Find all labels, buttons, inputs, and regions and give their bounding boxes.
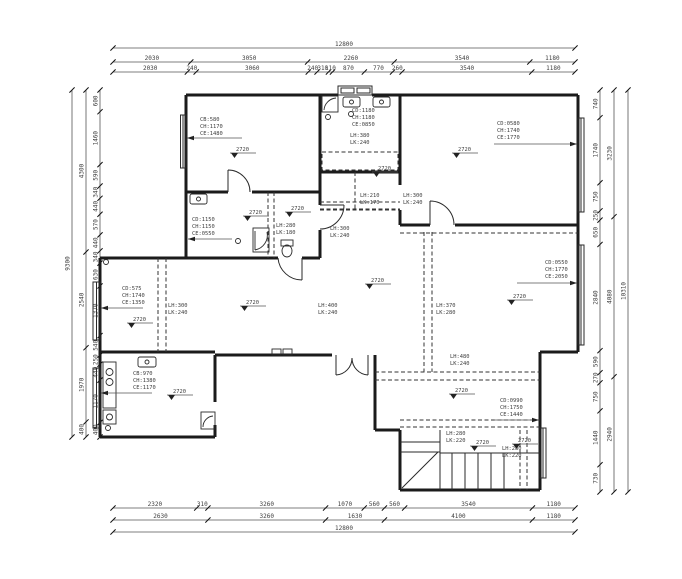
elevation-marker: 2720	[470, 440, 496, 451]
svg-text:LH:480: LH:480	[450, 354, 469, 360]
svg-text:590: 590	[93, 169, 100, 180]
french-door-arcs	[336, 355, 368, 375]
svg-text:CH:1740: CH:1740	[497, 128, 520, 134]
svg-text:2720: 2720	[455, 388, 468, 394]
sink	[343, 97, 360, 107]
svg-text:CE:1350: CE:1350	[122, 300, 145, 306]
svg-text:CH:1740: CH:1740	[122, 293, 145, 299]
svg-text:CD:0990: CD:0990	[500, 398, 523, 404]
svg-text:2720: 2720	[246, 300, 259, 306]
door-kitchen	[201, 412, 215, 429]
svg-text:2030: 2030	[143, 65, 158, 72]
svg-text:440: 440	[93, 200, 100, 211]
svg-text:LH:300: LH:300	[330, 226, 349, 232]
window-annotation: CB:580 CH:1170 CE:1480	[187, 117, 242, 140]
svg-text:CD:1150: CD:1150	[192, 217, 215, 223]
doors	[201, 96, 454, 429]
svg-text:650: 650	[593, 226, 600, 237]
svg-text:LK:170: LK:170	[360, 200, 379, 206]
svg-text:750: 750	[593, 191, 600, 202]
svg-text:340: 340	[93, 251, 100, 262]
sink	[190, 194, 207, 204]
svg-text:250: 250	[93, 354, 100, 365]
svg-text:CH:1170: CH:1170	[200, 124, 223, 130]
dim-top-minor: 2030240306024031011087077026035401180	[110, 65, 577, 75]
svg-text:2630: 2630	[153, 513, 168, 520]
beam-label: LH:380LK:240 LH:210LK:170 LH:300LK:240 L…	[168, 133, 521, 459]
svg-text:2720: 2720	[249, 210, 262, 216]
svg-text:LK:240: LK:240	[330, 233, 349, 239]
svg-text:4300: 4300	[79, 163, 86, 178]
svg-text:LH:280: LH:280	[276, 223, 295, 229]
dim-right-middle: 323040802940	[607, 87, 617, 494]
svg-text:250: 250	[593, 210, 600, 221]
svg-text:4080: 4080	[607, 289, 614, 304]
svg-text:570: 570	[93, 219, 100, 230]
dim-bottom-major: 26303260163041001180	[110, 513, 577, 523]
svg-text:2720: 2720	[458, 147, 471, 153]
elevation-marker: 2720	[285, 206, 311, 217]
svg-text:CH:1150: CH:1150	[192, 224, 215, 230]
svg-text:400: 400	[79, 424, 86, 435]
elevation-marker: 2720	[365, 278, 391, 289]
windows-glazing	[93, 86, 584, 478]
elevation-marker: 2720	[240, 300, 266, 311]
floor-plan-drawing: 12800 20303050226035401180 2030240306024…	[0, 0, 682, 579]
svg-text:LK:220: LK:220	[446, 438, 465, 444]
svg-text:LH:380: LH:380	[350, 133, 369, 139]
svg-text:3540: 3540	[461, 501, 476, 508]
svg-text:LK:220: LK:220	[502, 453, 521, 459]
exterior-walls	[100, 95, 578, 490]
svg-text:750: 750	[593, 391, 600, 402]
svg-text:260: 260	[392, 65, 403, 72]
svg-text:2720: 2720	[173, 389, 186, 395]
elevation-marker: 2720	[127, 317, 153, 328]
svg-text:600: 600	[93, 95, 100, 106]
svg-text:LH:280: LH:280	[446, 431, 465, 437]
svg-text:3540: 3540	[455, 55, 470, 62]
svg-text:CH:1380: CH:1380	[133, 378, 156, 384]
svg-text:110: 110	[325, 65, 336, 72]
window-annotation: CD:1180 CH:1180 CE:0850	[352, 108, 375, 128]
dim-bottom-minor: 23203103260107056056035401180	[110, 501, 577, 511]
svg-text:730: 730	[593, 473, 600, 484]
dim-top-major: 20303050226035401180	[110, 55, 577, 65]
svg-text:CD:575: CD:575	[122, 286, 141, 292]
svg-text:630: 630	[93, 269, 100, 280]
door-bedroom-arc	[228, 170, 250, 192]
svg-text:CD:0580: CD:0580	[497, 121, 520, 127]
elevation-marker: 2720	[167, 389, 193, 400]
svg-text:CE:0850: CE:0850	[352, 122, 375, 128]
svg-text:2030: 2030	[145, 55, 160, 62]
door-toilet	[253, 228, 269, 252]
svg-text:3260: 3260	[260, 513, 275, 520]
svg-text:12800: 12800	[335, 41, 353, 48]
svg-text:CE:1170: CE:1170	[133, 385, 156, 391]
dim-left-middle: 430025401970400	[79, 87, 89, 439]
svg-text:2720: 2720	[236, 147, 249, 153]
svg-text:770: 770	[373, 65, 384, 72]
svg-text:2260: 2260	[344, 55, 359, 62]
svg-text:3060: 3060	[245, 65, 260, 72]
svg-text:3540: 3540	[460, 65, 475, 72]
svg-text:LK:240: LK:240	[350, 140, 369, 146]
svg-text:10310: 10310	[621, 282, 628, 300]
elevation-marker: 2720	[507, 294, 533, 305]
dim-right-inner: 740174075025065028405902707501440730	[593, 87, 603, 494]
elevation-marker: 2720	[243, 210, 269, 221]
svg-text:LH:300: LH:300	[403, 193, 422, 199]
svg-text:2720: 2720	[291, 206, 304, 212]
svg-text:440: 440	[93, 237, 100, 248]
svg-text:CE:1440: CE:1440	[500, 412, 523, 418]
svg-text:1180: 1180	[546, 513, 561, 520]
door-right-room-arc	[430, 201, 454, 225]
window-annotation: CD:0580 CH:1740 CE:1770	[494, 121, 577, 146]
svg-text:2720: 2720	[476, 440, 489, 446]
svg-text:CB:580: CB:580	[200, 117, 219, 123]
svg-text:2720: 2720	[133, 317, 146, 323]
svg-text:LH:370: LH:370	[436, 303, 455, 309]
svg-text:2720: 2720	[518, 438, 531, 444]
svg-text:1440: 1440	[593, 430, 600, 445]
svg-text:CE:2050: CE:2050	[545, 274, 568, 280]
elevation-marker: 2720	[512, 438, 538, 449]
toilet	[281, 240, 293, 257]
entry-door-panel	[338, 86, 372, 95]
svg-text:CE:0550: CE:0550	[192, 231, 215, 237]
svg-text:1180: 1180	[546, 501, 561, 508]
svg-text:560: 560	[369, 501, 380, 508]
dim-right-total: 10310	[621, 87, 631, 494]
window-annotation: CB:970 CH:1380 CE:1170	[101, 371, 156, 395]
svg-text:2320: 2320	[148, 501, 163, 508]
elevation-marker: 2720	[230, 147, 256, 158]
sink	[138, 357, 156, 367]
svg-text:1970: 1970	[79, 377, 86, 392]
svg-text:LK:240: LK:240	[450, 361, 469, 367]
svg-text:1740: 1740	[593, 143, 600, 158]
sink	[373, 97, 390, 107]
svg-text:1630: 1630	[348, 513, 363, 520]
floor-plan-canvas: 12800 20303050226035401180 2030240306024…	[0, 0, 682, 579]
svg-text:12800: 12800	[335, 525, 353, 532]
svg-text:340: 340	[93, 186, 100, 197]
dim-top-total: 12800	[110, 41, 577, 51]
svg-text:560: 560	[389, 501, 400, 508]
svg-text:2720: 2720	[371, 278, 384, 284]
svg-text:740: 740	[593, 98, 600, 109]
svg-text:540: 540	[93, 340, 100, 351]
svg-text:LH:400: LH:400	[318, 303, 337, 309]
svg-text:3230: 3230	[607, 146, 614, 161]
svg-text:240: 240	[186, 65, 197, 72]
svg-text:CH:1770: CH:1770	[545, 267, 568, 273]
svg-text:3050: 3050	[242, 55, 257, 62]
svg-text:LH:300: LH:300	[168, 303, 187, 309]
window-annotation: CD:575 CH:1740 CE:1350	[101, 286, 145, 310]
svg-text:2940: 2940	[607, 427, 614, 442]
svg-text:LK:180: LK:180	[276, 230, 295, 236]
svg-text:4100: 4100	[451, 513, 466, 520]
window-annotation: CD:0550 CH:1770 CE:2050	[517, 260, 577, 285]
svg-text:LK:240: LK:240	[318, 310, 337, 316]
svg-text:3260: 3260	[260, 501, 275, 508]
shower-door	[322, 96, 338, 112]
svg-text:870: 870	[343, 65, 354, 72]
svg-text:CD:1180: CD:1180	[352, 108, 375, 114]
dim-bottom-total: 12800	[110, 525, 577, 535]
svg-text:CH:1180: CH:1180	[352, 115, 375, 121]
elevation-marker: 2720	[452, 147, 478, 158]
svg-text:1070: 1070	[338, 501, 353, 508]
svg-text:2540: 2540	[79, 292, 86, 307]
svg-text:1460: 1460	[93, 131, 100, 146]
dim-left-total: 9300	[65, 87, 75, 439]
svg-text:9300: 9300	[65, 256, 72, 271]
svg-text:LK:280: LK:280	[436, 310, 455, 316]
svg-text:CE:1480: CE:1480	[200, 131, 223, 137]
svg-text:2720: 2720	[513, 294, 526, 300]
svg-text:1180: 1180	[546, 65, 561, 72]
svg-text:590: 590	[593, 356, 600, 367]
svg-text:310: 310	[197, 501, 208, 508]
svg-text:CD:0550: CD:0550	[545, 260, 568, 266]
svg-text:270: 270	[593, 372, 600, 383]
window-annotation: CD:1150 CH:1150 CE:0550	[188, 217, 232, 241]
svg-text:LH:280: LH:280	[502, 446, 521, 452]
svg-text:LK:240: LK:240	[168, 310, 187, 316]
elevation-marker: 2720	[449, 388, 475, 399]
door-bath-arc	[278, 258, 302, 280]
svg-text:2840: 2840	[593, 290, 600, 305]
svg-text:CE:1770: CE:1770	[497, 135, 520, 141]
svg-text:1180: 1180	[545, 55, 560, 62]
svg-text:LH:210: LH:210	[360, 193, 379, 199]
svg-text:2720: 2720	[378, 166, 391, 172]
window-annotation: CD:0990 CH:1750 CE:1440	[494, 398, 539, 422]
svg-text:CH:1750: CH:1750	[500, 405, 523, 411]
svg-text:CB:970: CB:970	[133, 371, 152, 377]
svg-text:LK:240: LK:240	[403, 200, 422, 206]
